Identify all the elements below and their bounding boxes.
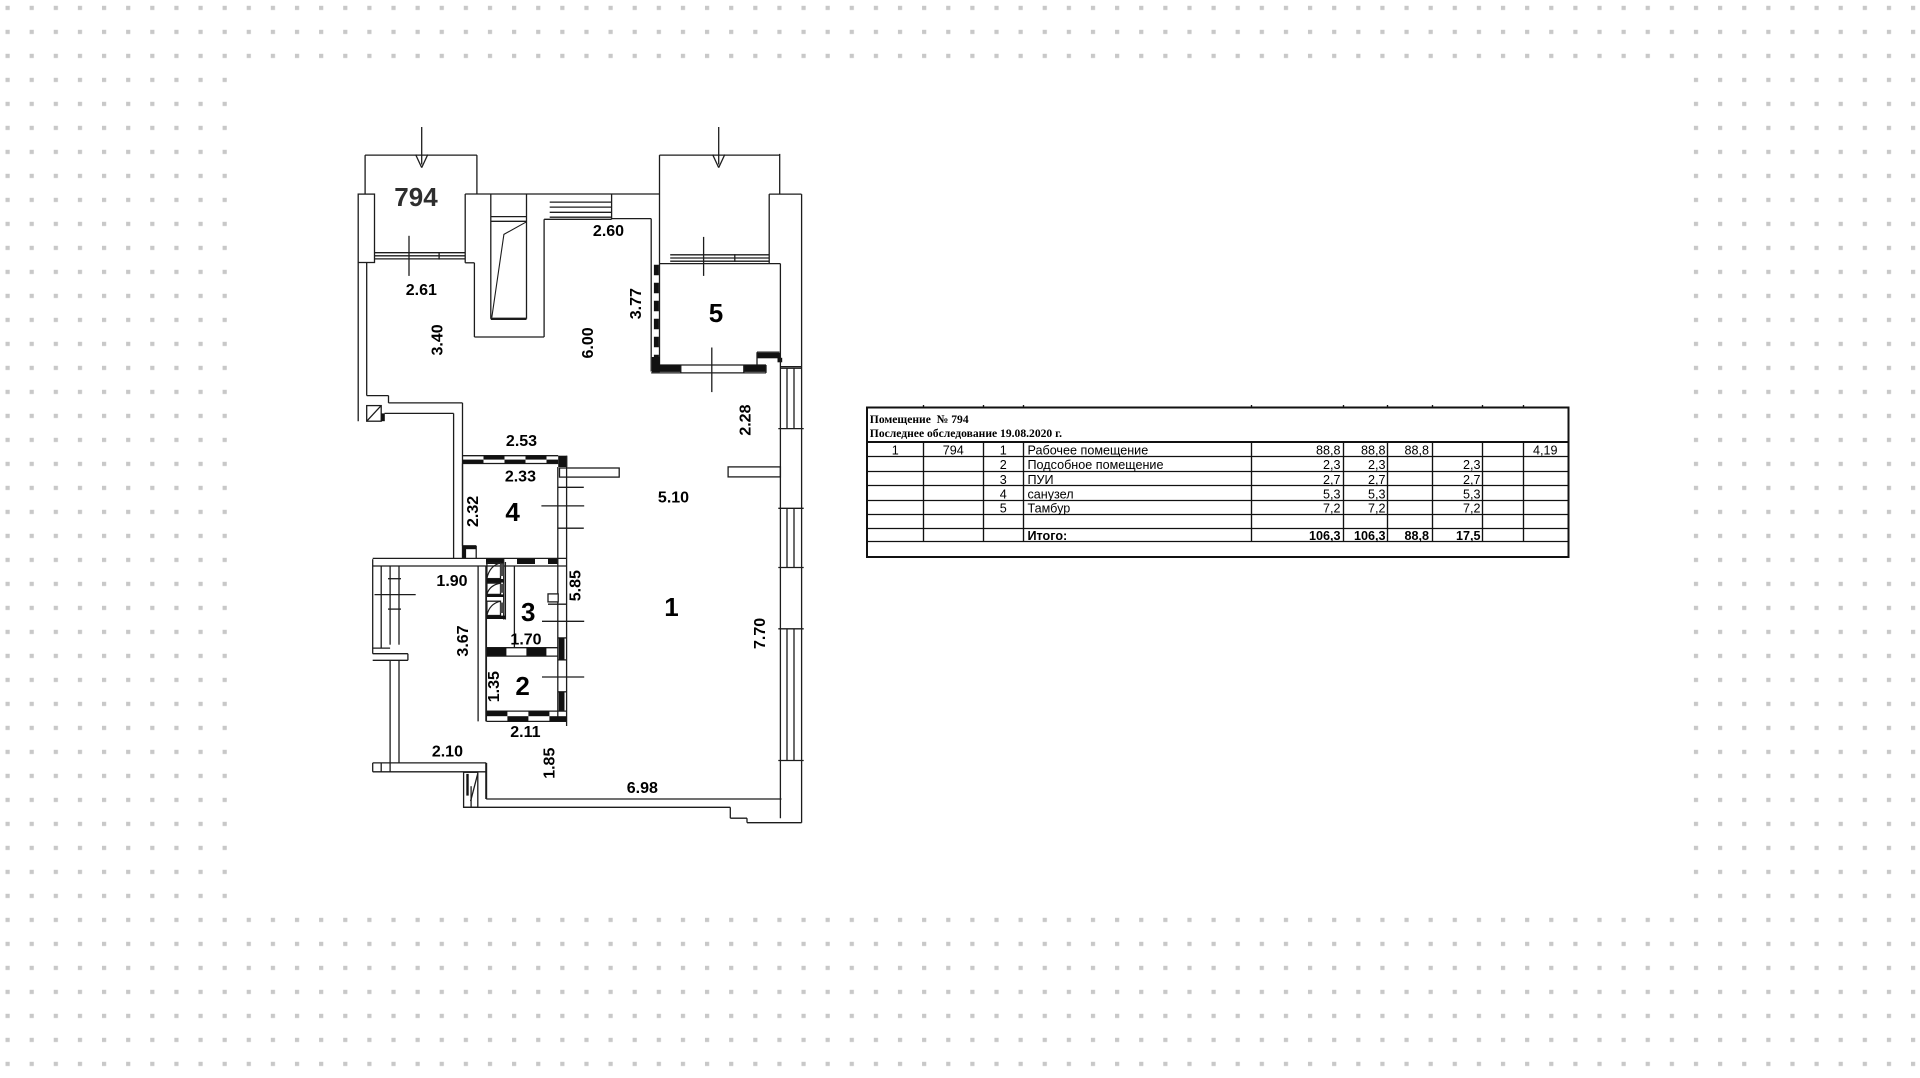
svg-text:3.77: 3.77 <box>628 288 645 319</box>
svg-text:4,19: 4,19 <box>1533 444 1558 458</box>
svg-text:7,2: 7,2 <box>1368 502 1386 516</box>
svg-text:5.85: 5.85 <box>567 570 584 601</box>
svg-text:88,8: 88,8 <box>1404 444 1429 458</box>
svg-text:ПУИ: ПУИ <box>1028 473 1054 487</box>
svg-text:2.32: 2.32 <box>465 496 482 527</box>
svg-text:1.70: 1.70 <box>510 631 541 648</box>
svg-text:88,8: 88,8 <box>1316 444 1341 458</box>
svg-text:2,3: 2,3 <box>1323 458 1341 472</box>
svg-text:7.70: 7.70 <box>752 618 769 649</box>
svg-text:3: 3 <box>1000 473 1007 487</box>
svg-text:2,7: 2,7 <box>1463 473 1481 487</box>
svg-text:1: 1 <box>664 592 678 622</box>
svg-text:5.10: 5.10 <box>658 490 689 507</box>
svg-text:5,3: 5,3 <box>1463 487 1481 501</box>
svg-text:6.00: 6.00 <box>580 327 597 358</box>
svg-text:1: 1 <box>1000 444 1007 458</box>
svg-text:2,7: 2,7 <box>1368 473 1386 487</box>
svg-text:Тамбур: Тамбур <box>1028 502 1071 516</box>
svg-text:7,2: 7,2 <box>1463 502 1481 516</box>
svg-text:2,7: 2,7 <box>1323 473 1341 487</box>
svg-text:3.40: 3.40 <box>429 324 446 355</box>
svg-text:2,3: 2,3 <box>1368 458 1386 472</box>
svg-text:3.67: 3.67 <box>455 625 472 656</box>
svg-text:5: 5 <box>709 298 723 328</box>
svg-text:106,3: 106,3 <box>1309 529 1341 543</box>
svg-text:2.60: 2.60 <box>593 223 624 240</box>
svg-text:2.10: 2.10 <box>432 744 463 761</box>
svg-text:санузел: санузел <box>1028 487 1074 501</box>
svg-text:88,8: 88,8 <box>1404 529 1429 543</box>
svg-text:106,3: 106,3 <box>1354 529 1386 543</box>
svg-text:Итого:: Итого: <box>1028 529 1068 543</box>
svg-text:2.28: 2.28 <box>737 404 754 435</box>
svg-text:1.90: 1.90 <box>436 573 467 590</box>
svg-text:Помещение № 794: Помещение № 794 <box>870 413 969 426</box>
svg-text:6.98: 6.98 <box>627 780 658 797</box>
svg-text:17,5: 17,5 <box>1456 529 1481 543</box>
svg-text:1.85: 1.85 <box>542 748 559 779</box>
svg-text:Последнее обследование 19.08.2: Последнее обследование 19.08.2020 г. <box>870 427 1062 440</box>
svg-text:2.11: 2.11 <box>510 724 540 741</box>
svg-text:2,3: 2,3 <box>1463 458 1481 472</box>
svg-text:7,2: 7,2 <box>1323 502 1341 516</box>
svg-text:Рабочее помещение: Рабочее помещение <box>1028 444 1149 458</box>
svg-text:Подсобное помещение: Подсобное помещение <box>1028 458 1164 472</box>
svg-text:88,8: 88,8 <box>1361 444 1386 458</box>
svg-text:2: 2 <box>515 671 529 701</box>
svg-text:794: 794 <box>394 182 438 212</box>
svg-text:2: 2 <box>1000 458 1007 472</box>
svg-text:794: 794 <box>943 444 964 458</box>
svg-text:5,3: 5,3 <box>1323 487 1341 501</box>
svg-text:2.53: 2.53 <box>506 433 537 450</box>
svg-text:3: 3 <box>521 597 535 627</box>
svg-text:5: 5 <box>1000 502 1007 516</box>
svg-text:5,3: 5,3 <box>1368 487 1386 501</box>
svg-text:2.61: 2.61 <box>406 282 437 299</box>
svg-text:4: 4 <box>1000 487 1007 501</box>
svg-text:2.33: 2.33 <box>505 469 536 486</box>
svg-text:4: 4 <box>505 497 520 527</box>
svg-text:1.35: 1.35 <box>486 671 503 702</box>
svg-text:1: 1 <box>892 444 899 458</box>
